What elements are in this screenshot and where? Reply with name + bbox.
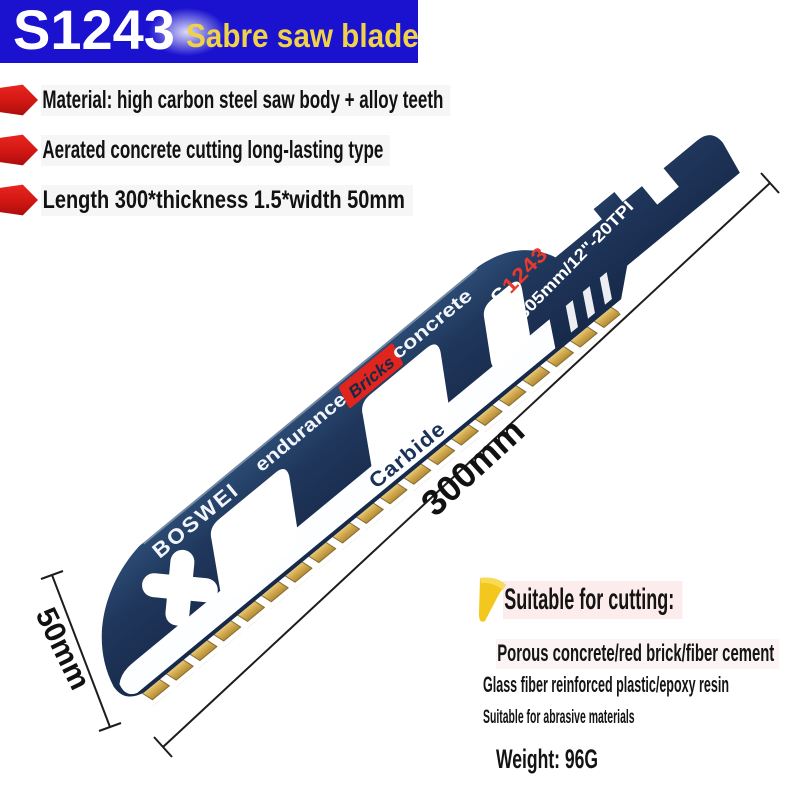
weight-label: Weight: 96G <box>496 744 598 775</box>
suitable-heading: Suitable for cutting: <box>503 581 683 619</box>
suitable-item: Glass fiber reinforced plastic/epoxy res… <box>483 672 729 698</box>
blade-group: BOSWEI endurance Bricks concrete Carbide… <box>55 96 769 717</box>
product-image-page: { "banner": { "model": "S1243", "subtitl… <box>0 0 800 800</box>
suitable-item: Suitable for abrasive materials <box>483 707 635 729</box>
suitable-item: Porous concrete/red brick/fiber cement <box>496 639 779 669</box>
width-dimension-label: 50mm <box>29 603 97 695</box>
